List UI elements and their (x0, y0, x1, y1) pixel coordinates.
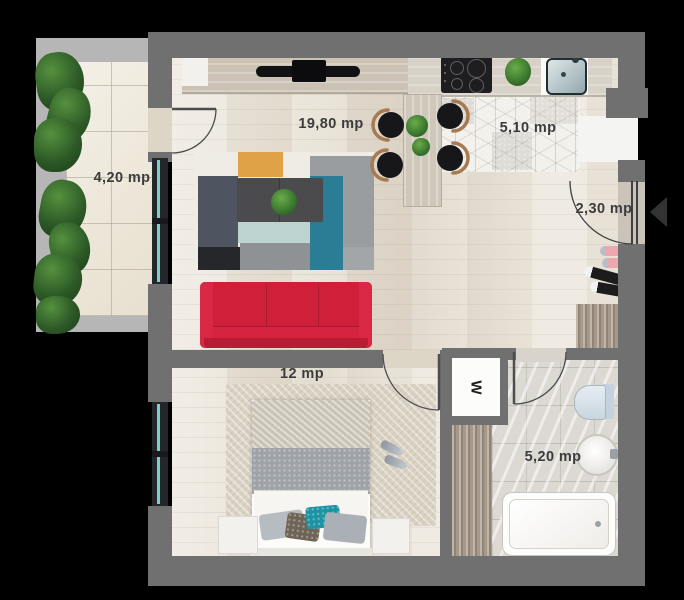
bathroom-area-label: 5,20 mp (525, 449, 582, 465)
hall-area-label: 2,30 mp (576, 201, 633, 217)
bedroom-area-label: 12 mp (280, 366, 324, 382)
bedroom-door (383, 354, 439, 410)
floor-plan: W (0, 0, 684, 600)
kitchen-area-label: 5,10 mp (500, 120, 557, 136)
living-area-label: 19,80 mp (298, 116, 363, 132)
entrance-arrow-icon (650, 197, 667, 227)
balcony-door (172, 109, 216, 153)
bathroom-door (514, 352, 566, 404)
balcony-area-label: 4,20 mp (94, 170, 151, 186)
dining-chairs (372, 101, 468, 180)
door-swing-layer (0, 0, 684, 600)
